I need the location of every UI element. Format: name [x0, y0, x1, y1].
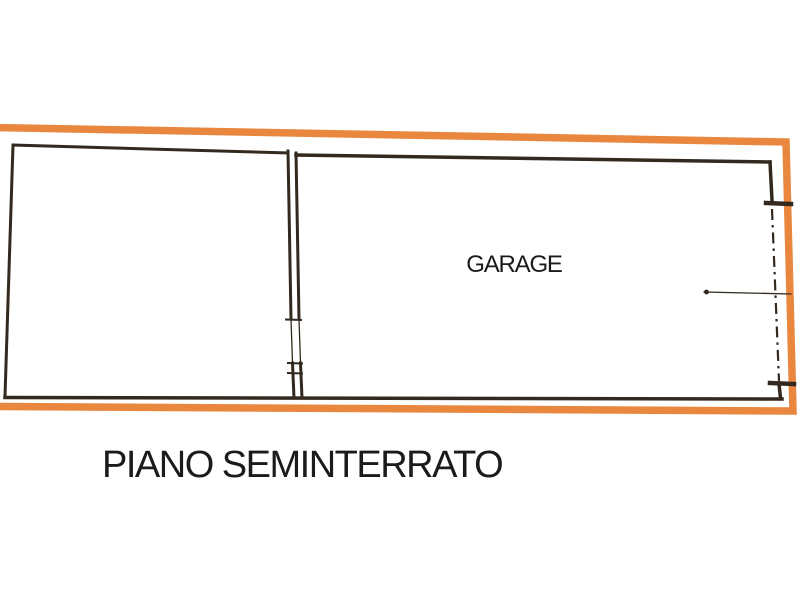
garage-room-label: GARAGE	[466, 251, 562, 278]
divider-wall-left-line-lower	[293, 363, 295, 398]
garage-right-wall-lower	[779, 384, 781, 398]
garage-right-wall-stub-top	[766, 203, 791, 204]
divider-door-tick-top	[286, 320, 301, 321]
walls	[5, 145, 794, 399]
divider-door-opening-left-jamb	[291, 319, 293, 363]
floor-plan-drawing: GARAGE PIANO SEMINTERRATO	[0, 0, 800, 600]
garage-top-wall	[296, 155, 770, 162]
garage-right-wall-upper	[770, 162, 772, 200]
divider-wall-left-line-upper	[288, 151, 291, 319]
property-boundary-line	[0, 128, 793, 412]
garage-right-wall-stub-bottom	[770, 383, 794, 384]
side-room-left-wall	[5, 145, 13, 396]
garage-right-wall-dashed-opening	[772, 209, 779, 381]
side-room-top-wall	[13, 145, 288, 153]
floor-plan-page: GARAGE PIANO SEMINTERRATO	[0, 0, 800, 600]
bottom-wall	[5, 398, 782, 400]
divider-door-opening-right-jamb	[299, 319, 301, 363]
floor-caption: PIANO SEMINTERRATO	[102, 444, 502, 486]
garage-section-line-end-dot	[704, 290, 709, 295]
divider-wall-right-line-lower	[301, 363, 303, 398]
garage-section-line	[704, 292, 791, 294]
divider-wall-right-line-upper	[296, 153, 299, 319]
